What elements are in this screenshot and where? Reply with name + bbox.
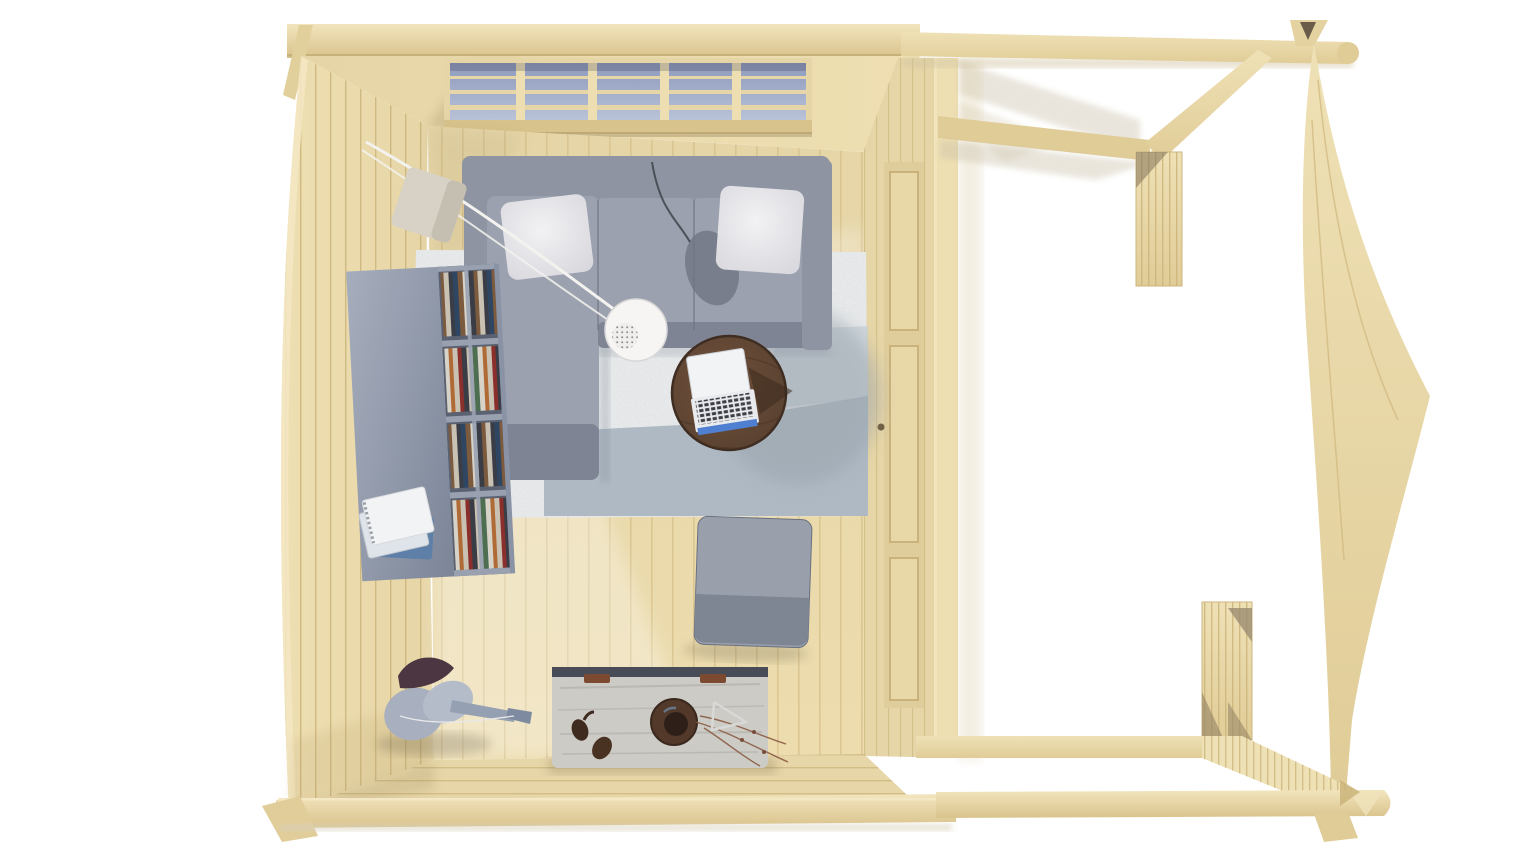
guitar-shadow (376, 732, 492, 756)
ottoman (683, 516, 812, 664)
door-panel-middle (890, 346, 918, 542)
side-canopy (901, 20, 1430, 842)
canopy-railing-upper (1136, 152, 1182, 286)
window-top-shadow (450, 63, 806, 71)
canopy-top-beam-cap (1337, 42, 1359, 64)
storage-chest (548, 667, 788, 774)
chest-bowl-inner (664, 712, 688, 736)
door-panel-top (890, 172, 918, 330)
canopy-right-fascia (1303, 44, 1430, 794)
door-panel-bottom (890, 558, 918, 700)
partition-door (878, 162, 925, 708)
cabin-top-view-render (0, 0, 1536, 864)
south-fascia-highlight (278, 798, 954, 801)
north-roof-fascia (287, 24, 920, 58)
canopy-floor-beam-inner (916, 736, 1238, 758)
canopy-corner-stub (1314, 812, 1358, 842)
door-handle (878, 424, 885, 431)
render-stage (0, 0, 1536, 864)
chest-hinge-left (584, 674, 610, 683)
glazed-front-wall (444, 58, 812, 137)
lamp-diffuser-holes (612, 323, 638, 349)
canopy-railing-lower (1202, 602, 1252, 740)
east-wall-outer-face (937, 58, 958, 758)
chest-hinge-right (700, 674, 726, 683)
east-wall-outer-edge (934, 58, 937, 758)
sofa-right-armrest (802, 160, 832, 350)
bookshelf (344, 264, 515, 582)
sofa-pillow-right (715, 185, 805, 275)
ottoman-front (694, 594, 810, 646)
south-drop-shadow (280, 824, 952, 831)
wall-shade-on-terrace (958, 60, 982, 760)
